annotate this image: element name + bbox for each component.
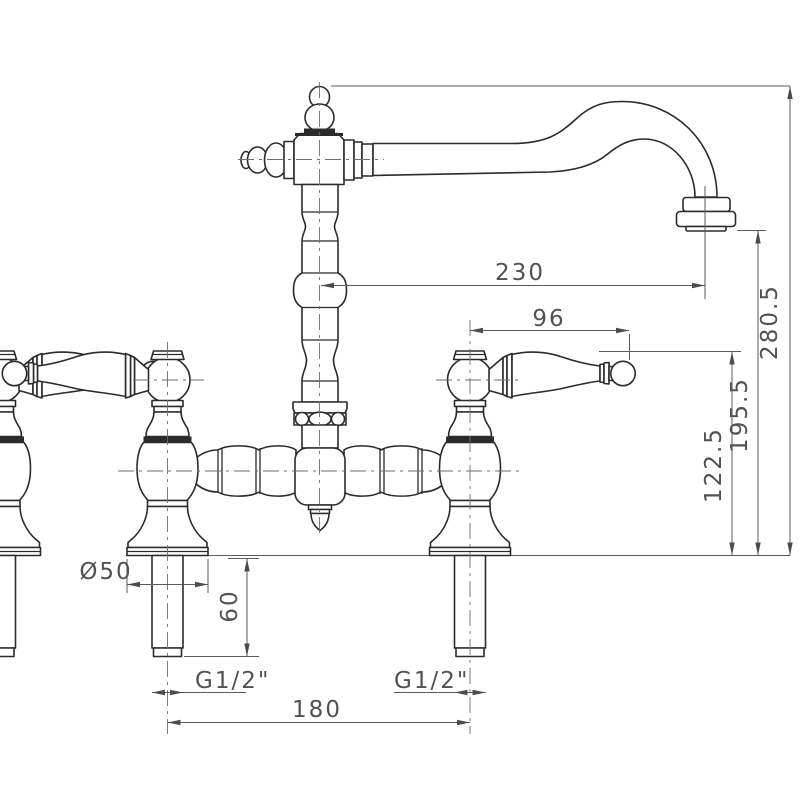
mixer-body xyxy=(295,448,345,505)
bridge-mixer-dimension-drawing: 230 96 280.5 195.5 xyxy=(0,0,800,800)
spout-outlet-collar xyxy=(683,198,730,212)
valve-cap xyxy=(0,351,17,360)
spout-outlet-lip xyxy=(686,227,726,232)
dim-label-base-diameter: Ø50 xyxy=(79,559,132,585)
valve-bell-ring xyxy=(0,501,20,507)
spout-collar-ring-2 xyxy=(354,142,362,178)
swivel-base-flange xyxy=(293,402,347,413)
dim-label-shank-length: 60 xyxy=(217,589,243,622)
bead-left xyxy=(296,413,309,426)
dim-label-spout-reach: 230 xyxy=(495,260,545,286)
spout-collar-ring-3 xyxy=(362,144,373,176)
dim-label-overall-height: 280.5 xyxy=(757,284,783,360)
technical-drawing-page: 230 96 280.5 195.5 xyxy=(0,0,800,800)
dim-label-handle-height: 122.5 xyxy=(701,427,727,503)
bead-center xyxy=(309,412,331,426)
dim-label-outlet-height: 195.5 xyxy=(727,377,753,453)
ornament-flange xyxy=(284,142,294,179)
dim-label-handle-length: 96 xyxy=(532,306,565,332)
spout-collar-ring-1 xyxy=(344,140,354,180)
valve-neck-ring-lower xyxy=(0,407,14,413)
dim-label-thread-left: G1/2" xyxy=(195,668,270,694)
valve-bulb xyxy=(0,443,31,501)
spout-outlet-band xyxy=(677,212,736,227)
swivel-block xyxy=(294,134,344,185)
inlet-shank xyxy=(0,556,16,649)
dim-label-thread-right: G1/2" xyxy=(394,668,469,694)
column-lower-shaft xyxy=(302,425,338,448)
bead-right xyxy=(332,413,345,426)
valve-oring-band xyxy=(0,437,24,443)
valve-neck-ring-upper xyxy=(0,401,16,407)
dim-label-hole-centres: 180 xyxy=(292,697,342,723)
inlet-shank-foot xyxy=(0,648,14,657)
swivel-block-top-band xyxy=(295,133,343,136)
